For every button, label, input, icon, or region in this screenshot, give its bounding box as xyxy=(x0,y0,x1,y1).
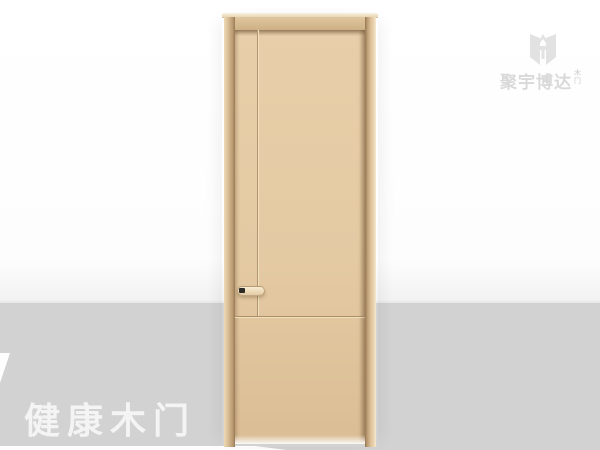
brand-name: 聚宇博达 xyxy=(500,73,572,93)
door-handle xyxy=(237,286,265,296)
door-bottom-fade xyxy=(235,435,365,444)
door-head-shadow xyxy=(235,30,365,36)
door-lock-indicator xyxy=(239,288,245,293)
door-frame-left-jamb xyxy=(224,17,235,447)
brand-text-row: 聚宇博达 木 门 xyxy=(500,68,590,93)
door-vertical-groove xyxy=(257,30,259,316)
door xyxy=(222,13,378,447)
door-slab-right-shade xyxy=(359,30,365,444)
product-image: 聚宇博达 木 门 健康木门 xyxy=(0,0,600,450)
brand-suffix-char-2: 门 xyxy=(574,77,581,85)
brand-suffix-char-1: 木 xyxy=(574,69,581,77)
door-slab xyxy=(235,30,365,444)
caption-text: 健康木门 xyxy=(24,392,196,444)
door-frame-right-jamb xyxy=(365,17,376,447)
door-frame-head xyxy=(224,17,376,30)
brand-suffix: 木 门 xyxy=(574,69,581,85)
door-horizontal-groove xyxy=(235,316,365,318)
brand-logo-icon xyxy=(529,32,557,66)
